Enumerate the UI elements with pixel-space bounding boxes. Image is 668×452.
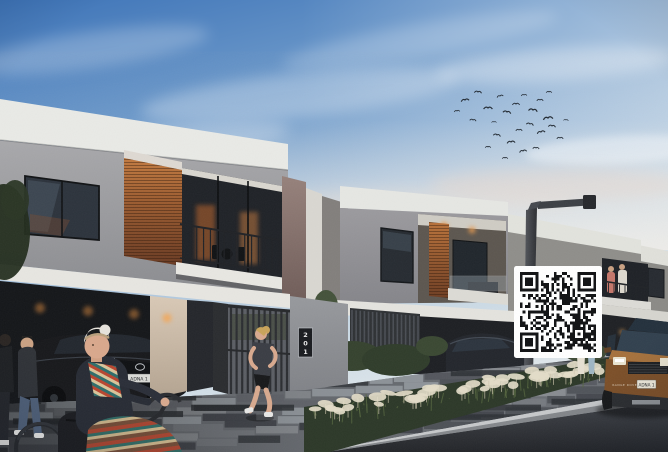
vignette: [0, 0, 668, 452]
rendered-photo: ADNA 1 201: [0, 0, 668, 452]
scene-canvas: ADNA 1 201: [0, 0, 668, 452]
